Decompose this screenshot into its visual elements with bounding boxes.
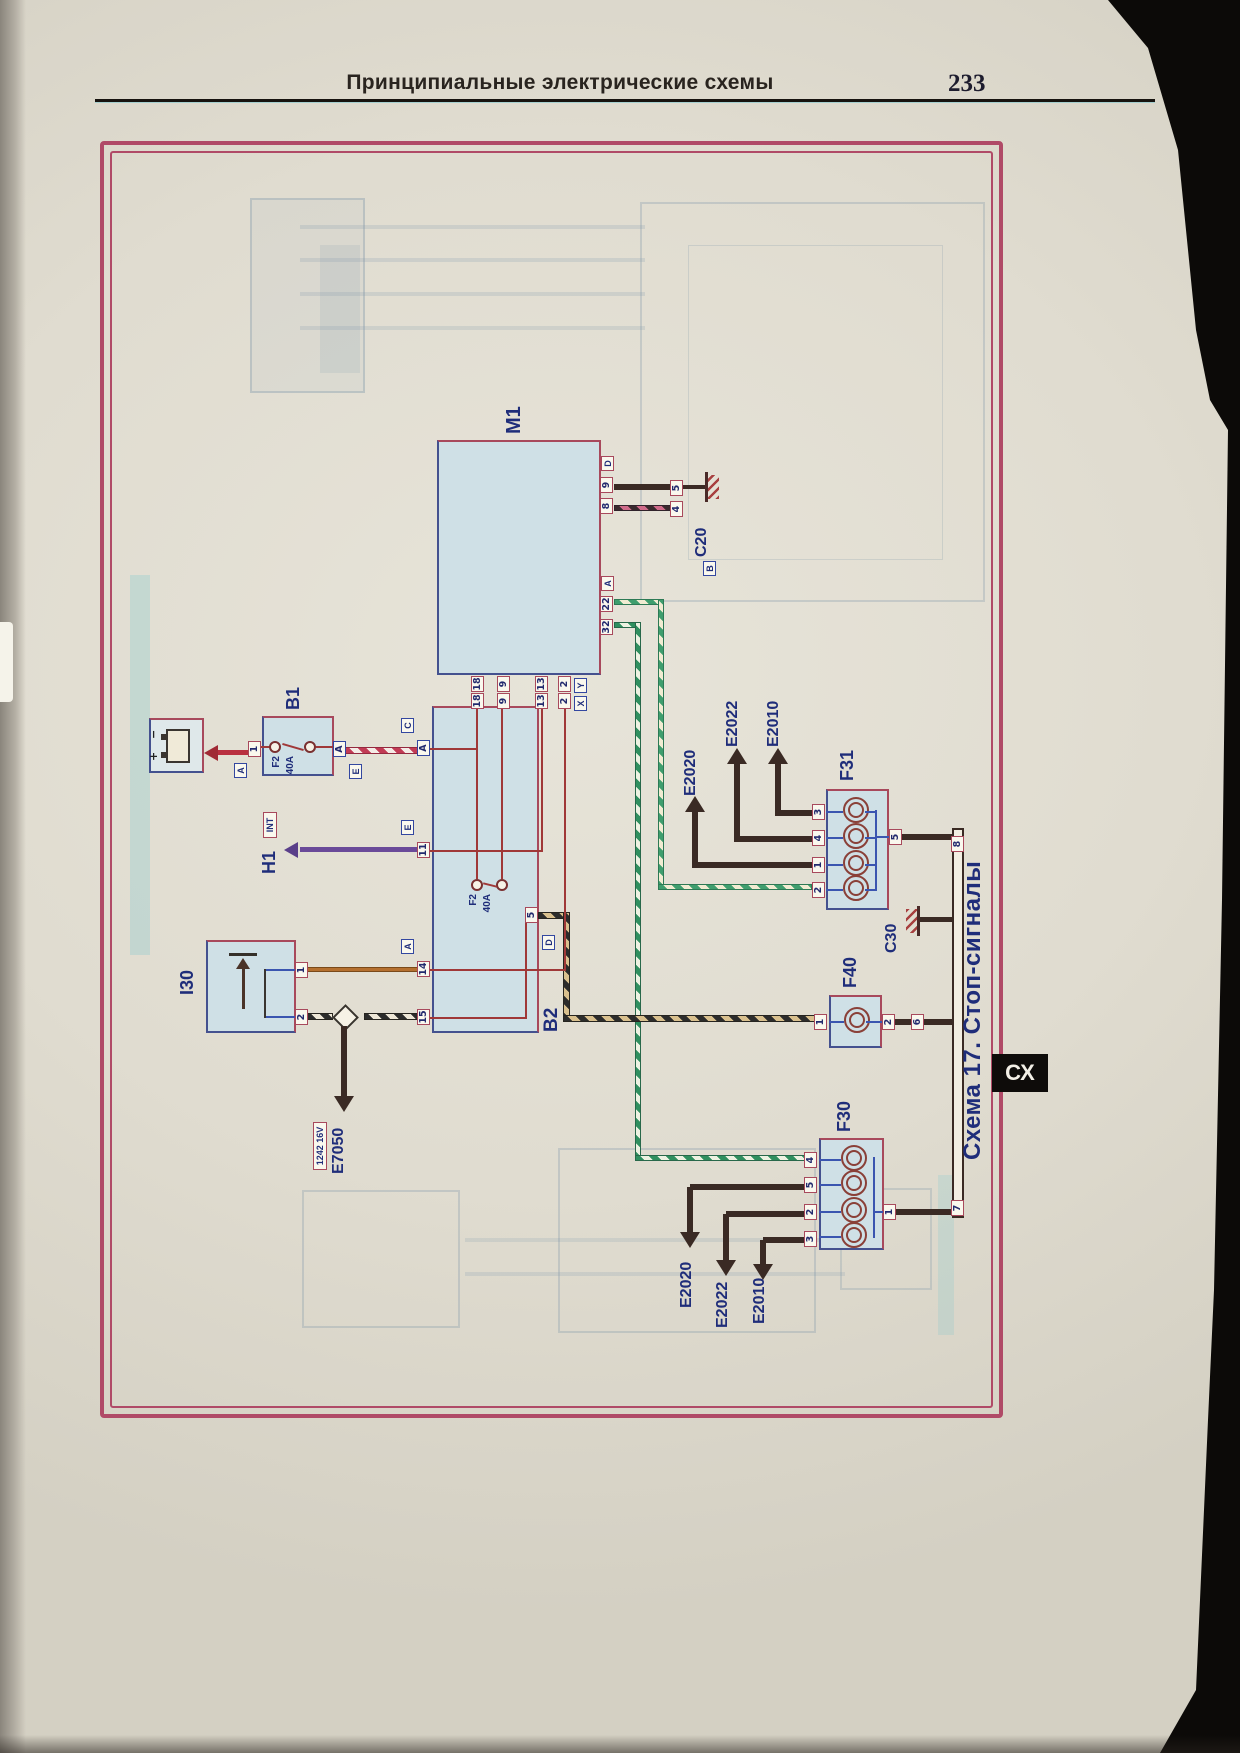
pin-m1-9: 9 [600,477,613,493]
f30-internal-rail [873,1157,875,1238]
wire-f30-3-e2010 [760,1240,766,1264]
pin-x-9: 9 [497,693,510,709]
pin-f31-4: 4 [812,830,825,846]
pin-b1-1: 1 [248,741,261,757]
wire-m1-22-seg [658,599,664,890]
wire-f31-4-e2022 [734,762,740,842]
header-rule-accent [95,102,1155,103]
connector-label-c20-b: B [703,561,716,576]
b2-internal-wire [430,1017,527,1019]
pin-f31-5: 5 [889,829,902,845]
pin-i30-1: 1 [295,962,308,978]
scan-edge-left [0,0,26,1753]
component-box-b2 [432,706,539,1033]
f40-internal [866,1021,882,1023]
battery-terminal [161,752,166,758]
wire-b1-battery [215,750,248,755]
label-c30: С30 [884,924,901,953]
label-f40: F40 [841,957,860,988]
e7050-arrow [334,1096,354,1112]
label-c20: С20 [694,528,711,557]
pin-i30-2: 2 [295,1009,308,1025]
b2-internal-wire [525,916,527,1019]
wire-f30-5-e2020 [687,1187,693,1232]
f31-internal [826,864,843,866]
wire-f30-3-e2010 [763,1237,804,1243]
wire-m1-22-seg [658,884,812,890]
connector-label-d: D [601,456,614,471]
battery-arrow [204,745,218,761]
wire-i30-b2-14 [307,967,419,972]
wire-m1-32-seg [635,1155,805,1161]
schematic-title: Схема 17. Стоп-сигналы [960,861,985,1160]
pin-x-13: 13 [535,693,548,709]
f30-internal [819,1159,841,1161]
label-e2022-lower: E2022 [715,1282,732,1328]
b2-internal-wire [501,706,503,879]
label-h1: Н1 [260,851,279,874]
schematic-canvas: + − [114,148,1004,1408]
f40-internal [829,1021,844,1023]
bulb-icon [843,823,869,849]
wire-i30-2-splice [307,1013,333,1020]
scan-edge-bottom [0,1735,1240,1753]
page-number: 233 [948,70,986,98]
b2-fuse-contact [496,879,508,891]
wire-f30-2-e2022 [726,1211,804,1217]
b2-fuse-contact [471,879,483,891]
pin-bar-7: 7 [951,1200,964,1216]
pin-f30-1: 1 [883,1204,896,1220]
pin-m1-32: 32 [600,619,613,635]
b1-fuse-contact [269,741,281,753]
wire-f30-2-e2022 [723,1214,729,1260]
connector-label-b2-e: E [401,820,414,835]
e2022-arrow-lower [716,1260,736,1276]
pin-x-2: 2 [558,693,571,709]
bulb-icon [841,1197,867,1223]
label-e2020-lower: E2020 [679,1262,696,1308]
pin-b2-15: 15 [417,1009,430,1025]
pin-y-18: 18 [471,676,484,692]
pin-f40-2: 2 [882,1014,895,1030]
wire-f31-3-e2010 [775,762,781,816]
e2022-arrow-upper [727,748,747,764]
pin-c20-5: 5 [670,480,683,496]
wire-bar-c30 [920,917,954,922]
label-e2022-upper: E2022 [725,701,742,747]
pin-b2-11: 11 [417,842,430,858]
b1-fuse-name: F2 [272,756,283,780]
label-e2020-upper: E2020 [683,750,700,796]
connector-label-b2-a: A [401,939,414,954]
label-e7050: E7050 [331,1128,348,1174]
i30-internal-wire [266,1016,296,1018]
wire-f31-1-e2020 [697,862,812,868]
f30-internal [819,1211,841,1213]
ground-symbol-c30 [904,906,920,936]
pin-f31-1: 1 [812,857,825,873]
b2-internal-wire [430,969,566,971]
label-b2: В2 [542,1008,562,1032]
pin-y-2: 2 [558,676,571,692]
pin-y-13: 13 [535,676,548,692]
wire-f31-4-e2022 [737,836,812,842]
pin-f31-3: 3 [812,804,825,820]
pin-bar-6: 6 [911,1014,924,1030]
e2020-arrow-upper [685,796,705,812]
wire-f30-5-e2020 [690,1184,804,1190]
wire-m1-9-c20 [614,484,672,490]
wire-splice-b2-15 [364,1013,421,1020]
pin-f30-2: 2 [804,1204,817,1220]
label-f31: F31 [838,750,857,781]
pin-f30-3: 3 [804,1231,817,1247]
wire-b1-b2 [345,747,419,754]
wire-f31-1-e2020 [692,810,698,868]
label-m1: М1 [504,406,525,434]
pin-b2-14: 14 [417,961,430,977]
section-tab: СХ [992,1054,1048,1092]
bulb-icon [841,1145,867,1171]
bulb-icon [843,797,869,823]
wire-splice-e7050 [341,1026,347,1098]
f31-internal [826,889,843,891]
bulb-icon [841,1170,867,1196]
b1-fuse-contact [304,741,316,753]
b1-internal-wire [316,746,334,748]
h1-arrow [284,842,298,858]
f31-internal-rail [875,810,877,891]
scanned-book-page: Принципиальные электрические схемы 233 [0,0,1240,1753]
label-f30: F30 [835,1101,854,1132]
wire-f31-5-bar [901,834,952,840]
pin-b1-out-a: A [333,741,346,757]
i30-actuator [242,969,245,1009]
pin-b2-5: 5 [525,907,538,923]
battery-icon: + − [149,718,204,773]
pin-x-18: 18 [471,693,484,709]
ground-symbol-c20 [705,472,721,502]
f31-internal [877,836,889,838]
label-engine-note: 1242 16V [313,1122,327,1170]
f31-internal [826,837,843,839]
connector-label-b2-d: D [542,935,555,950]
connector-label-x: X [574,696,587,711]
i30-internal-wire [266,969,296,971]
pin-f40-1: 1 [814,1014,827,1030]
pin-m1-22: 22 [600,596,613,612]
pin-c20-4: 4 [670,501,683,517]
label-e2010-upper: E2010 [766,701,783,747]
e2010-arrow-upper [768,748,788,764]
bulb-icon [843,875,869,901]
f30-internal [819,1236,841,1238]
bulb-icon [841,1222,867,1248]
label-h1-int: INT [263,812,277,838]
wire-m1-22-seg [614,599,664,605]
wire-b2-f40-seg [563,1015,815,1022]
bulb-icon [843,850,869,876]
battery-plus: + [147,752,160,761]
wire-m1-32-seg [635,622,641,1161]
component-box-m1 [437,440,601,675]
b2-internal-wire [564,706,566,971]
connector-label-b1-a: A [234,763,247,778]
wire-b2-f40-seg [538,912,566,919]
b2-internal-wire [430,850,543,852]
b1-fuse-rating: 40А [286,756,297,784]
connector-label-b2-c: C [401,718,414,733]
pin-y-9: 9 [497,676,510,692]
wire-b2-h1 [300,847,419,852]
pin-f30-5: 5 [804,1177,817,1193]
i30-pedal-bar [229,953,257,956]
pin-b2-a: A [417,740,430,756]
wire-f30-1-bar [895,1209,952,1215]
f31-internal [826,811,843,813]
label-e2010-lower: E2010 [752,1278,769,1324]
b2-internal-wire [541,706,543,852]
f30-internal [819,1184,841,1186]
page-header-title: Принципиальные электрические схемы [280,72,840,94]
pin-f30-4: 4 [804,1152,817,1168]
b2-fuse-name: F2 [469,894,480,922]
pin-m1-8: 8 [600,498,613,514]
battery-minus: − [147,730,160,739]
wire-m1-8-c20 [614,505,672,511]
label-i30: I30 [178,970,197,995]
connector-label-b1-e: E [349,764,362,779]
battery-body [166,729,190,763]
connector-label-a: A [601,576,614,591]
pin-f31-2: 2 [812,882,825,898]
e2020-arrow-lower [680,1232,700,1248]
i30-actuator-arrow [236,958,250,969]
underlying-page-sliver [0,622,13,702]
connector-label-y: Y [574,678,587,693]
b2-fuse-rating: 40А [483,894,494,926]
pin-bar-8: 8 [951,836,964,852]
bulb-icon [844,1007,870,1033]
i30-contact [264,969,266,1018]
wire-c20-ground [683,485,705,489]
label-b1: В1 [284,687,303,710]
b2-internal-wire [476,706,478,879]
b2-internal-wire [430,748,478,750]
battery-terminal [161,734,166,740]
